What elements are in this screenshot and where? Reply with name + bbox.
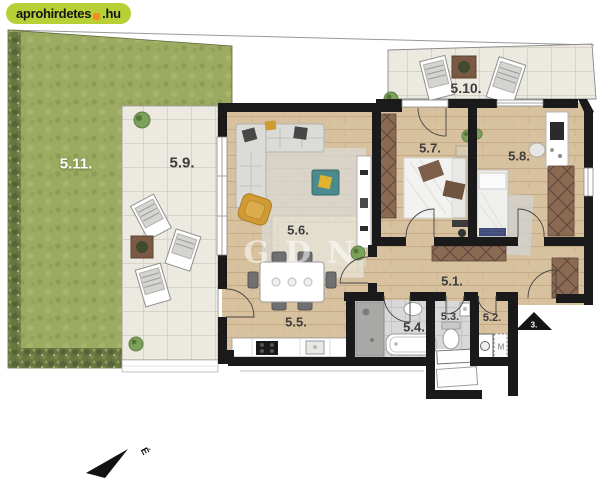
terrace-5-10: [384, 44, 596, 106]
single-bed: [477, 170, 508, 236]
pillow: [293, 126, 308, 140]
entrance-number: 3.: [531, 321, 538, 330]
aprohirdetes-logo: aprohirdetes .hu: [6, 3, 131, 24]
toilet-tank: [442, 322, 460, 329]
nightstand: [456, 146, 470, 156]
blanket: [479, 228, 506, 236]
north-arrow-icon: [86, 449, 128, 478]
room-label-5-8: 5.8.: [508, 149, 530, 164]
logo-tld-text: .hu: [102, 6, 121, 21]
room-label-5-5: 5.5.: [285, 315, 307, 330]
outside-area: [518, 305, 600, 369]
hallway-wardrobe: [432, 246, 506, 261]
washing-machine-label: M: [498, 343, 505, 352]
laptop: [550, 122, 564, 140]
room-label-5-4: 5.4.: [403, 320, 425, 335]
logo-accent-dot-icon: [93, 13, 100, 20]
plant-icon: [134, 112, 150, 128]
floor-plan-image: aprohirdetes .hu 5.1. 5.2. 5.3. 5.4. 5.5…: [0, 0, 600, 481]
washbasin: [404, 303, 422, 316]
desk-chair: [529, 143, 545, 157]
entry-step: [436, 367, 477, 388]
plant-icon: [129, 337, 143, 351]
room-label-5-1: 5.1.: [441, 274, 463, 289]
kitchen-counter: [232, 338, 354, 357]
room-label-5-2: 5.2.: [483, 312, 501, 324]
wardrobe: [548, 166, 574, 236]
double-bed: [404, 158, 466, 218]
room-label-5-10: 5.10.: [450, 80, 481, 96]
cooktop: [256, 341, 278, 355]
room-label-5-11: 5.11.: [60, 156, 93, 173]
gdn-watermark: GDN: [227, 236, 370, 271]
pillow: [265, 120, 277, 130]
tv-sideboard: [357, 156, 371, 248]
room-label-5-7: 5.7.: [419, 141, 441, 156]
doormat: [437, 349, 474, 364]
wardrobe: [380, 114, 396, 218]
hedge-bottom: [8, 348, 122, 368]
room-label-5-3: 5.3.: [441, 311, 459, 323]
pillow: [479, 173, 506, 189]
ottoman: [312, 170, 339, 195]
stool: [458, 229, 466, 237]
terrace-5-9: [122, 106, 218, 372]
side-table: [452, 56, 476, 78]
hedge-left: [8, 32, 21, 366]
shower: [356, 302, 384, 356]
side-table: [131, 236, 153, 258]
toilet: [443, 329, 459, 349]
logo-brand-text: aprohirdetes: [16, 6, 91, 21]
room-label-5-6: 5.6.: [287, 223, 309, 238]
bench: [452, 220, 468, 227]
room-label-5-9: 5.9.: [169, 155, 194, 172]
